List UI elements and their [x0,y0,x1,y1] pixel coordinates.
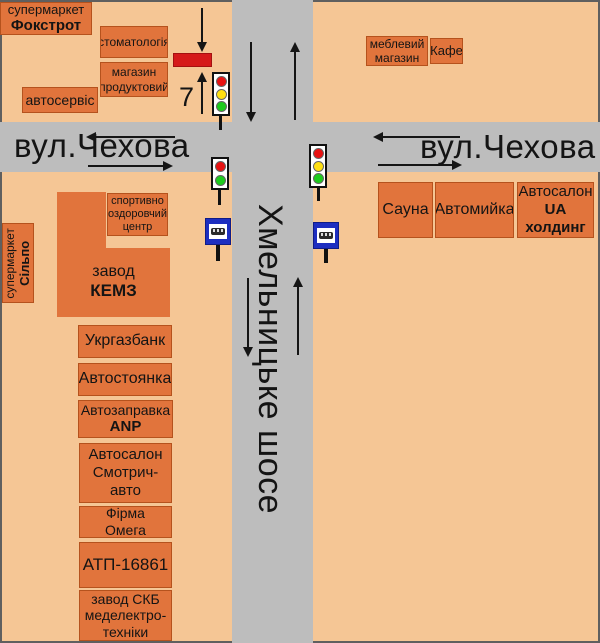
place-omega: Фірма Омега [79,506,172,538]
place-cafe: Кафе [430,38,463,64]
place-grocery: магазин продуктовий [100,62,168,97]
arrow-left-icon [95,136,175,138]
green-light-icon [313,173,324,184]
place-label: Кафе [430,43,463,58]
place-label: Автосалон Смотрич- авто [88,446,162,499]
place-label: автосервіс [25,92,94,109]
place-furniture-store: меблевий магазин [366,36,428,66]
bus-stop-sign-icon [205,218,231,245]
traffic-light-icon [212,72,230,116]
arrow-right-icon [88,165,164,167]
place-gas-station: Автозаправка ANP [78,400,173,438]
arrow-right-icon [378,164,453,166]
billboard-number-label: 7 [179,82,194,113]
red-light-icon [215,161,226,172]
place-skb-plant: завод СКБ меделектро- техніки [79,590,172,641]
place-label: магазин продуктовий [100,65,168,93]
place-sauna: Сауна [378,182,433,238]
place-kemz: завод КЕМЗ [57,252,170,312]
place-label: КЕМЗ [90,281,137,301]
red-light-icon [313,148,324,159]
place-silpo: супермаркет Сільпо [2,223,34,303]
street-label-khmelnytske: Хмельницьке шосе [250,204,289,514]
place-label: Автостоянка [79,370,172,389]
place-atp-16861: АТП-16861 [79,542,172,588]
arrow-down-icon [201,8,203,43]
street-label-chekhova-east: вул.Чехова [420,128,596,166]
place-label: Автосалон [518,183,592,201]
place-fokstrot: супермаркет Фокстрот [0,2,92,35]
place-dentistry: стоматологія [100,26,168,58]
place-label: Фірма Омега [105,506,146,538]
bus-icon [317,228,335,243]
arrow-down-icon [247,278,249,348]
place-label: Автомийка [435,201,514,220]
billboard-marker [173,53,212,67]
traffic-light-pole [218,190,221,205]
place-label: ANP [110,418,142,436]
place-ua-holding: Автосалон UA холдинг [517,182,594,238]
traffic-light-pole [219,116,222,130]
bus-icon [209,224,227,239]
yellow-light-icon [216,89,227,100]
place-ukrgazbank: Укргазбанк [78,325,172,358]
map-canvas: вул.Чехова вул.Чехова Хмельницьке шосе 7 [0,0,600,643]
arrow-up-icon [297,286,299,355]
bus-stop-pole [216,245,220,261]
place-label: завод [92,262,134,281]
place-sport-center: спортивно оздоровчий центр [107,193,168,236]
red-light-icon [216,76,227,87]
place-label: спортивно оздоровчий центр [108,195,167,234]
arrow-down-icon [250,42,252,113]
place-label: Фокстрот [11,17,81,35]
place-label: Сауна [382,201,428,220]
arrow-up-icon [294,51,296,120]
place-label: Автозаправка [81,402,170,419]
bus-stop-sign-icon [313,222,339,249]
yellow-light-icon [313,161,324,172]
place-label: UA холдинг [518,201,593,236]
place-label: супермаркет [4,228,18,299]
place-label: завод СКБ меделектро- техніки [85,591,166,641]
place-kemz-building [57,192,106,249]
place-label: стоматологія [100,35,168,49]
place-label: меблевий магазин [370,37,425,65]
place-smotrych-auto: Автосалон Смотрич- авто [79,443,172,503]
place-carwash: Автомийка [435,182,514,238]
traffic-light-icon [211,157,229,190]
place-parking: Автостоянка [78,363,172,396]
street-label-chekhova-west: вул.Чехова [14,127,190,165]
place-label: Укргазбанк [85,332,165,351]
green-light-icon [216,101,227,112]
place-label: АТП-16861 [83,555,169,575]
traffic-light-icon [309,144,327,188]
green-light-icon [215,175,226,186]
place-label: супермаркет [8,2,84,17]
place-label: Сільпо [17,240,32,285]
place-autoservice: автосервіс [22,87,98,113]
arrow-left-icon [382,136,460,138]
bus-stop-pole [324,249,328,263]
arrow-up-icon [201,81,203,114]
place-silpo-label: супермаркет Сільпо [4,228,33,299]
traffic-light-pole [317,188,320,201]
